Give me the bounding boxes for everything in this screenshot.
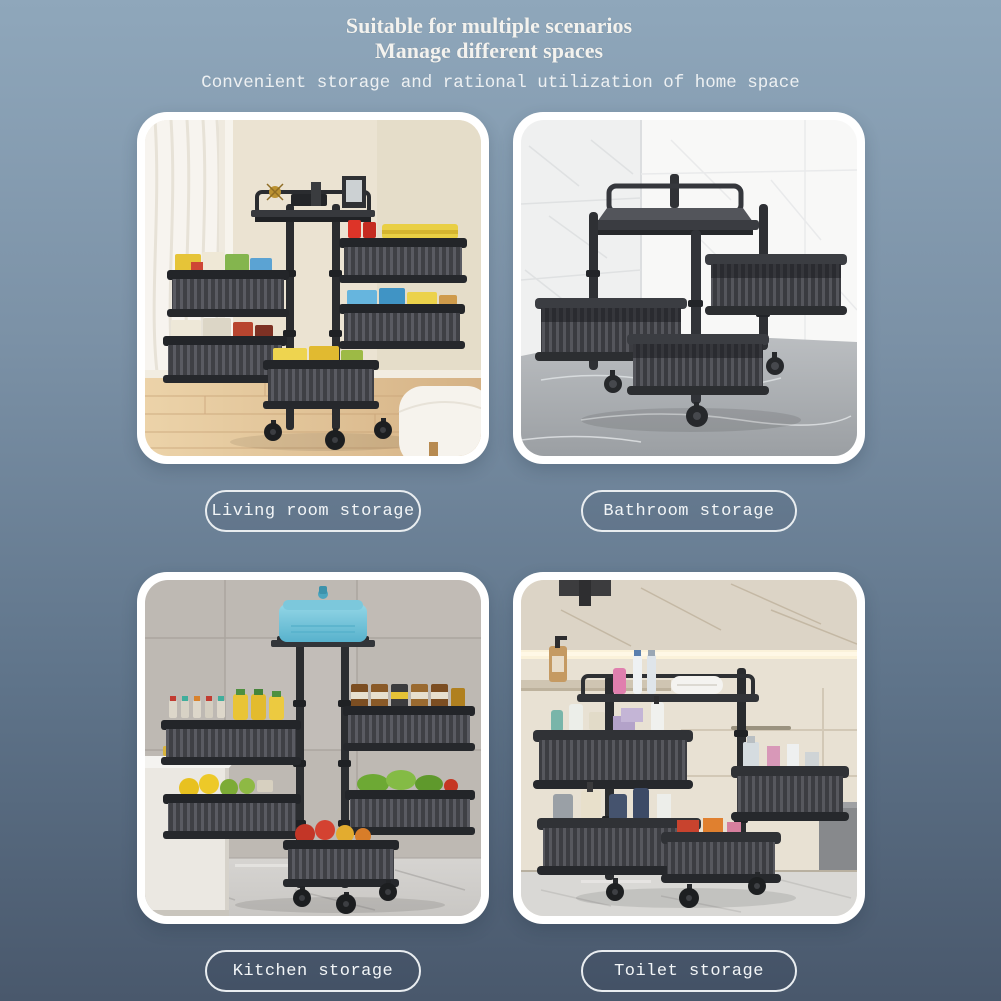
red-cup xyxy=(348,220,361,238)
kitchen-photo xyxy=(145,580,481,916)
scenario-card-kitchen xyxy=(137,572,489,924)
headline: Suitable for multiple scenarios Manage d… xyxy=(0,13,978,63)
headline-line2: Manage different spaces xyxy=(0,38,978,63)
red-cup xyxy=(363,222,376,238)
basket-right-upper xyxy=(339,220,467,283)
caption-bathroom: Bathroom storage xyxy=(581,490,797,532)
caption-living-room: Living room storage xyxy=(205,490,421,532)
marble-band xyxy=(521,580,857,652)
pink-tube xyxy=(613,668,626,694)
caption-kitchen: Kitchen storage xyxy=(205,950,421,992)
bathroom-photo xyxy=(521,120,857,456)
vase xyxy=(311,182,321,206)
toilet-photo xyxy=(521,580,857,916)
scenario-card-toilet xyxy=(513,572,865,924)
basket-right xyxy=(705,254,847,315)
living-room-photo xyxy=(145,120,481,456)
basket-bottom xyxy=(263,346,379,409)
promo-poster: Suitable for multiple scenarios Manage d… xyxy=(0,0,1001,1001)
books xyxy=(291,194,327,206)
basket-center xyxy=(627,334,769,395)
led-strip xyxy=(521,650,857,659)
ottoman-leg xyxy=(429,442,438,456)
ottoman xyxy=(399,386,481,456)
scenario-card-bathroom xyxy=(513,112,865,464)
basket-right-lower xyxy=(339,288,465,349)
headline-line1: Suitable for multiple scenarios xyxy=(0,13,978,38)
caption-toilet: Toilet storage xyxy=(581,950,797,992)
subtitle: Convenient storage and rational utilizat… xyxy=(0,73,1001,93)
basket-left-upper xyxy=(167,252,289,317)
scenario-card-living-room xyxy=(137,112,489,464)
